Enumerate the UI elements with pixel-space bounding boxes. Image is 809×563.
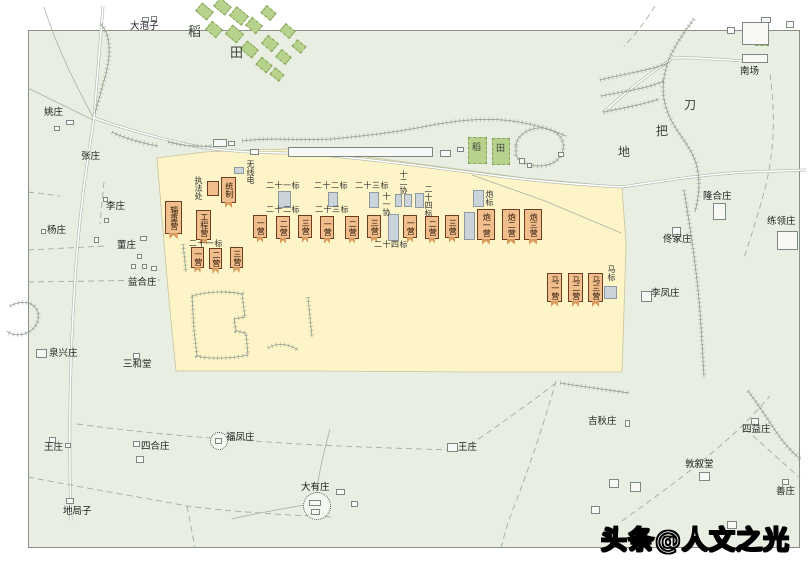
village-label: 地局子 [63, 508, 92, 518]
building [351, 501, 358, 507]
building [742, 22, 769, 45]
camp-banner: 马一营 [547, 273, 562, 302]
building [309, 500, 321, 506]
building [457, 147, 464, 152]
building [54, 126, 60, 131]
village-label: 姚庄 [44, 109, 63, 119]
camp-banner-label: 统制 [224, 182, 232, 198]
camp-banner-label: 马一营 [550, 276, 558, 300]
camp-unit-label: 十一协 [382, 192, 390, 216]
camp-banner: 炮二营 [502, 209, 520, 240]
building [215, 438, 222, 444]
building [527, 163, 532, 168]
watermark: 头条@人文之光网 [601, 520, 809, 563]
village-label: 张庄 [81, 153, 100, 163]
camp-unit-label: 二十一标 [189, 240, 223, 248]
village-label: 福凤庄 [226, 434, 255, 444]
area-name-char: 刀 [684, 99, 696, 111]
village-label: 四益庄 [742, 426, 771, 436]
building [440, 150, 451, 157]
building [36, 349, 47, 358]
camp-unit-label: 炮标 [485, 190, 493, 206]
building [727, 27, 735, 34]
camp-banner: 辎重营 [165, 201, 182, 234]
village-label: 益合庄 [128, 279, 157, 289]
barracks-building [464, 212, 475, 240]
camp-banner-label: 工程营 [199, 213, 207, 237]
building [250, 149, 259, 155]
camp-unit-label: 执法处 [194, 176, 202, 200]
camp-banner-label: 一营 [256, 219, 264, 235]
camp-banner: 二营 [209, 248, 222, 269]
camp-banner-label: 一营 [406, 219, 414, 235]
building [777, 231, 798, 250]
building [761, 17, 771, 23]
village-label: 练领庄 [767, 218, 796, 228]
building [336, 489, 345, 495]
building [66, 498, 74, 504]
camp-unit-label: 无线电 [246, 160, 254, 184]
village-label: 李凤庄 [651, 290, 680, 300]
building [311, 509, 320, 515]
building [751, 418, 759, 425]
walled-village-icon [303, 492, 331, 520]
camp-unit-label: 二十二标 [266, 206, 300, 214]
building [630, 482, 641, 492]
camp-banner: 炮一营 [477, 209, 495, 240]
camp-banner-label: 一营 [323, 220, 331, 236]
camp-banner: 二营 [276, 216, 290, 239]
camp-banner: 马三营 [588, 273, 603, 302]
village-label: 泉兴庄 [49, 350, 78, 360]
area-name-char: 田 [496, 144, 505, 153]
camp-banner: 二营 [425, 216, 439, 239]
camp-banner: 三营 [367, 215, 381, 238]
camp-banner-label: 马二营 [571, 276, 579, 300]
area-name-char: 田 [230, 46, 243, 59]
building [591, 506, 600, 514]
barracks-building [388, 214, 399, 241]
camp-banner: 一营 [320, 216, 334, 239]
camp-banner-label: 二营 [348, 220, 356, 236]
camp-banner-label: 三营 [370, 219, 378, 235]
camp-unit-label: 二十三标 [355, 182, 389, 190]
building [41, 229, 46, 234]
village-label: 王庄 [458, 444, 477, 454]
barracks-building [415, 193, 424, 208]
building [151, 266, 157, 271]
camp-banner: 一营 [191, 247, 204, 268]
building [782, 479, 789, 485]
building [131, 264, 136, 269]
building [558, 152, 564, 157]
building [228, 141, 235, 146]
barracks-building [395, 194, 402, 207]
village-label: 佟家庄 [663, 236, 692, 246]
building [609, 479, 619, 488]
office-box-marker [207, 181, 219, 196]
village-label: 隆合庄 [703, 193, 732, 203]
area-name-char: 稻 [472, 143, 481, 152]
camp-banner: 马二营 [568, 273, 583, 302]
building [288, 147, 433, 157]
village-label: 四合庄 [141, 443, 170, 453]
barracks-building [473, 190, 484, 207]
building [66, 120, 74, 125]
village-label: 董庄 [117, 242, 136, 252]
barracks-building [604, 286, 617, 299]
camp-banner-label: 二营 [428, 220, 436, 236]
village-label: 杨庄 [47, 227, 66, 237]
building [65, 443, 71, 448]
building [519, 158, 525, 164]
camp-banner: 三营 [298, 215, 312, 238]
village-label: 李庄 [106, 203, 125, 213]
building [133, 441, 140, 447]
camp-banner-label: 二营 [211, 251, 219, 267]
village-label: 南场 [740, 68, 759, 78]
camp-unit-label: 二十四标 [374, 241, 408, 249]
area-name-char: 地 [618, 146, 630, 158]
map-linework [0, 0, 809, 563]
camp-banner: 统制 [221, 177, 236, 203]
camp-banner-label: 一营 [193, 250, 201, 266]
barracks-building [404, 194, 412, 207]
barracks-building [369, 192, 379, 208]
building [137, 254, 142, 259]
camp-unit-label: 马标 [607, 265, 615, 281]
building [213, 139, 227, 147]
camp-banner: 一营 [253, 215, 267, 238]
camp-banner-label: 炮二营 [507, 213, 515, 237]
building [104, 218, 109, 223]
camp-banner-label: 炮一营 [482, 213, 490, 237]
camp-banner: 三营 [230, 247, 243, 268]
village-label: 三和堂 [123, 361, 152, 371]
camp-banner-label: 辎重营 [169, 206, 177, 230]
village-label: 吉秋庄 [588, 418, 617, 428]
village-label: 大泡子 [130, 23, 159, 33]
camp-unit-label: 二十一标 [266, 182, 300, 190]
historical-camp-map: 统制辎重营工程营一营二营三营一营二营三营一营二营三营一营二营三营炮一营炮二营炮三… [0, 0, 809, 563]
camp-unit-label: 二十四标 [424, 185, 432, 217]
building [786, 21, 794, 28]
building [713, 203, 726, 220]
camp-banner-label: 三营 [448, 219, 456, 235]
camp-banner: 二营 [345, 216, 359, 239]
building [447, 443, 458, 452]
building [142, 264, 147, 269]
camp-unit-label: 十二协 [399, 170, 407, 194]
building [133, 353, 140, 359]
camp-banner-label: 二营 [279, 220, 287, 236]
camp-unit-label: 二十二标 [314, 182, 348, 190]
building [699, 472, 710, 481]
village-label: 大有庄 [301, 484, 330, 494]
building [742, 54, 768, 63]
building [94, 237, 99, 243]
building [151, 16, 157, 21]
camp-banner: 三营 [445, 215, 459, 238]
camp-banner-label: 马三营 [591, 276, 599, 300]
camp-banner: 一营 [403, 215, 417, 238]
camp-banner: 工程营 [196, 210, 211, 240]
building [625, 420, 630, 427]
building [140, 236, 147, 241]
village-label: 敦叙堂 [685, 461, 714, 471]
building [136, 456, 144, 463]
area-name-char: 稻 [188, 25, 201, 38]
camp-unit-label: 二十三标 [315, 206, 349, 214]
camp-banner: 炮三营 [524, 209, 542, 240]
camp-banner-label: 炮三营 [529, 213, 537, 237]
village-label: 善庄 [776, 488, 795, 498]
camp-banner-label: 三营 [232, 250, 240, 266]
camp-banner-label: 三营 [301, 219, 309, 235]
barracks-building [234, 167, 244, 174]
area-name-char: 把 [656, 125, 668, 137]
village-label: 王庄 [44, 444, 63, 454]
